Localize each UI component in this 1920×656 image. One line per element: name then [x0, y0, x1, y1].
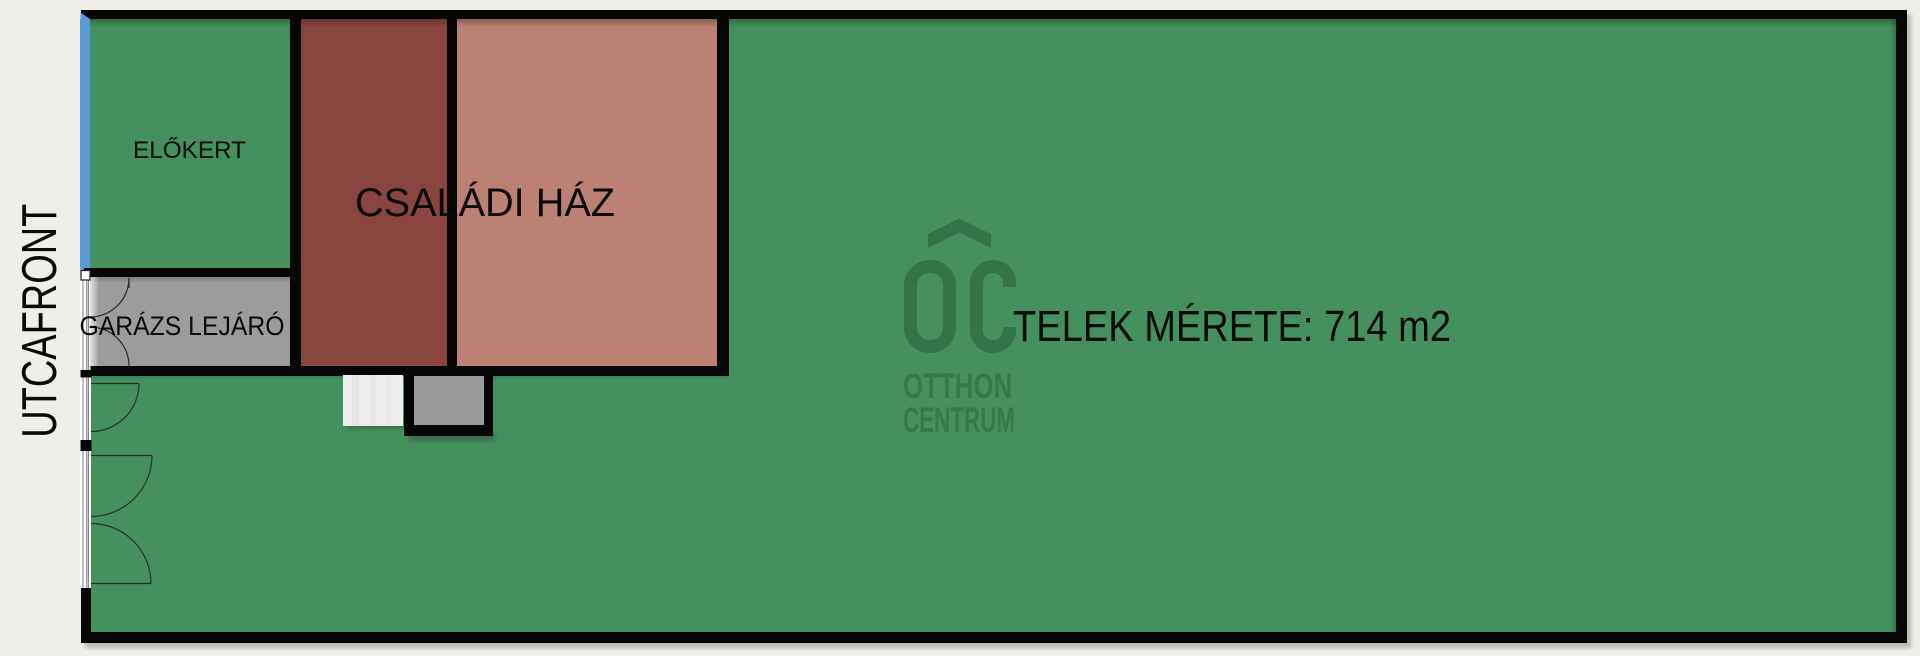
svg-text:GARÁZS LEJÁRÓ: GARÁZS LEJÁRÓ: [80, 311, 285, 341]
svg-text:ELŐKERT: ELŐKERT: [133, 137, 246, 164]
svg-text:CENTRUM: CENTRUM: [903, 401, 1015, 440]
svg-text:UTCAFRONT: UTCAFRONT: [13, 204, 67, 438]
svg-text:TELEK MÉRETE: 714 m2: TELEK MÉRETE: 714 m2: [1013, 302, 1451, 351]
svg-text:CSALÁDI HÁZ: CSALÁDI HÁZ: [355, 180, 615, 225]
svg-text:OTTHON: OTTHON: [903, 366, 1012, 406]
